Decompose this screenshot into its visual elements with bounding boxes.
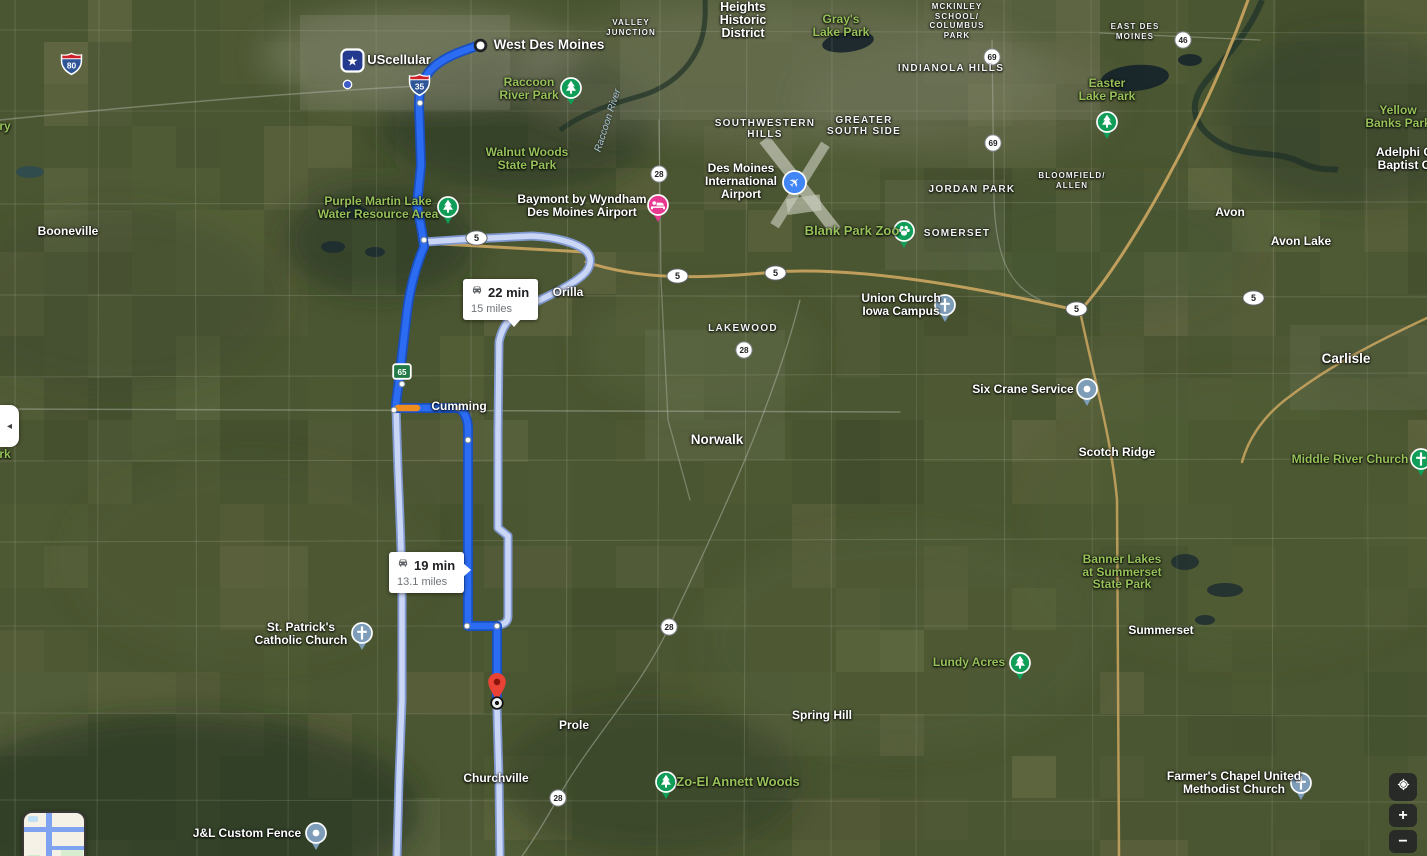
route-eta-bubble-alternate[interactable]: 22 min 15 miles — [463, 279, 538, 320]
bubble-tail — [507, 319, 521, 327]
six-crane-service-pin[interactable] — [1074, 377, 1100, 412]
middle-river-church-pin[interactable] — [1408, 447, 1427, 482]
eta-time: 22 min — [488, 285, 529, 300]
car-icon — [396, 556, 410, 575]
blank-park-zoo-pin[interactable] — [891, 219, 917, 254]
raccoon-river-park-pin[interactable] — [558, 76, 584, 111]
farmers-chapel-pin[interactable] — [1288, 771, 1314, 806]
destination-point[interactable] — [489, 695, 505, 716]
collapse-panel-tab[interactable]: ◂ — [0, 405, 19, 447]
airport-pin[interactable]: ✈ — [781, 169, 808, 201]
eta-distance: 15 miles — [470, 303, 529, 315]
minimap-water — [28, 816, 38, 822]
purple-martin-lake-pin[interactable] — [435, 195, 461, 230]
route-eta-bubble-selected[interactable]: 19 min 13.1 miles — [389, 552, 464, 593]
small-poi-dot[interactable] — [342, 77, 353, 95]
car-icon — [470, 283, 484, 302]
map-pins-layer: ★✈ — [0, 0, 1427, 856]
minimap-toggle[interactable] — [22, 811, 86, 856]
eta-distance: 13.1 miles — [396, 576, 455, 588]
zo-el-annett-woods-pin[interactable] — [653, 770, 679, 805]
route-start-marker[interactable] — [472, 37, 489, 59]
baymont-hotel-pin[interactable] — [645, 193, 671, 228]
my-location-button[interactable] — [1389, 773, 1417, 801]
bubble-tail — [463, 563, 471, 577]
map-canvas[interactable]: 3580555552828282869694665 ★✈ West Des Mo… — [0, 0, 1427, 856]
union-church-pin[interactable] — [932, 293, 958, 328]
easter-lake-park-pin[interactable] — [1094, 110, 1120, 145]
minimap-road — [24, 827, 84, 832]
st-patricks-church-pin[interactable] — [349, 621, 375, 656]
zoom-out-button[interactable]: − — [1389, 830, 1417, 853]
chevron-left-icon: ◂ — [7, 421, 12, 432]
lundy-acres-pin[interactable] — [1007, 651, 1033, 686]
eta-time: 19 min — [414, 558, 455, 573]
my-location-icon — [1396, 777, 1411, 797]
zoom-in-button[interactable]: + — [1389, 804, 1417, 827]
svg-text:★: ★ — [346, 53, 358, 68]
uscellular-badge[interactable]: ★ — [340, 48, 365, 78]
minimap-road — [50, 846, 84, 850]
jl-custom-fence-pin[interactable] — [303, 821, 329, 856]
